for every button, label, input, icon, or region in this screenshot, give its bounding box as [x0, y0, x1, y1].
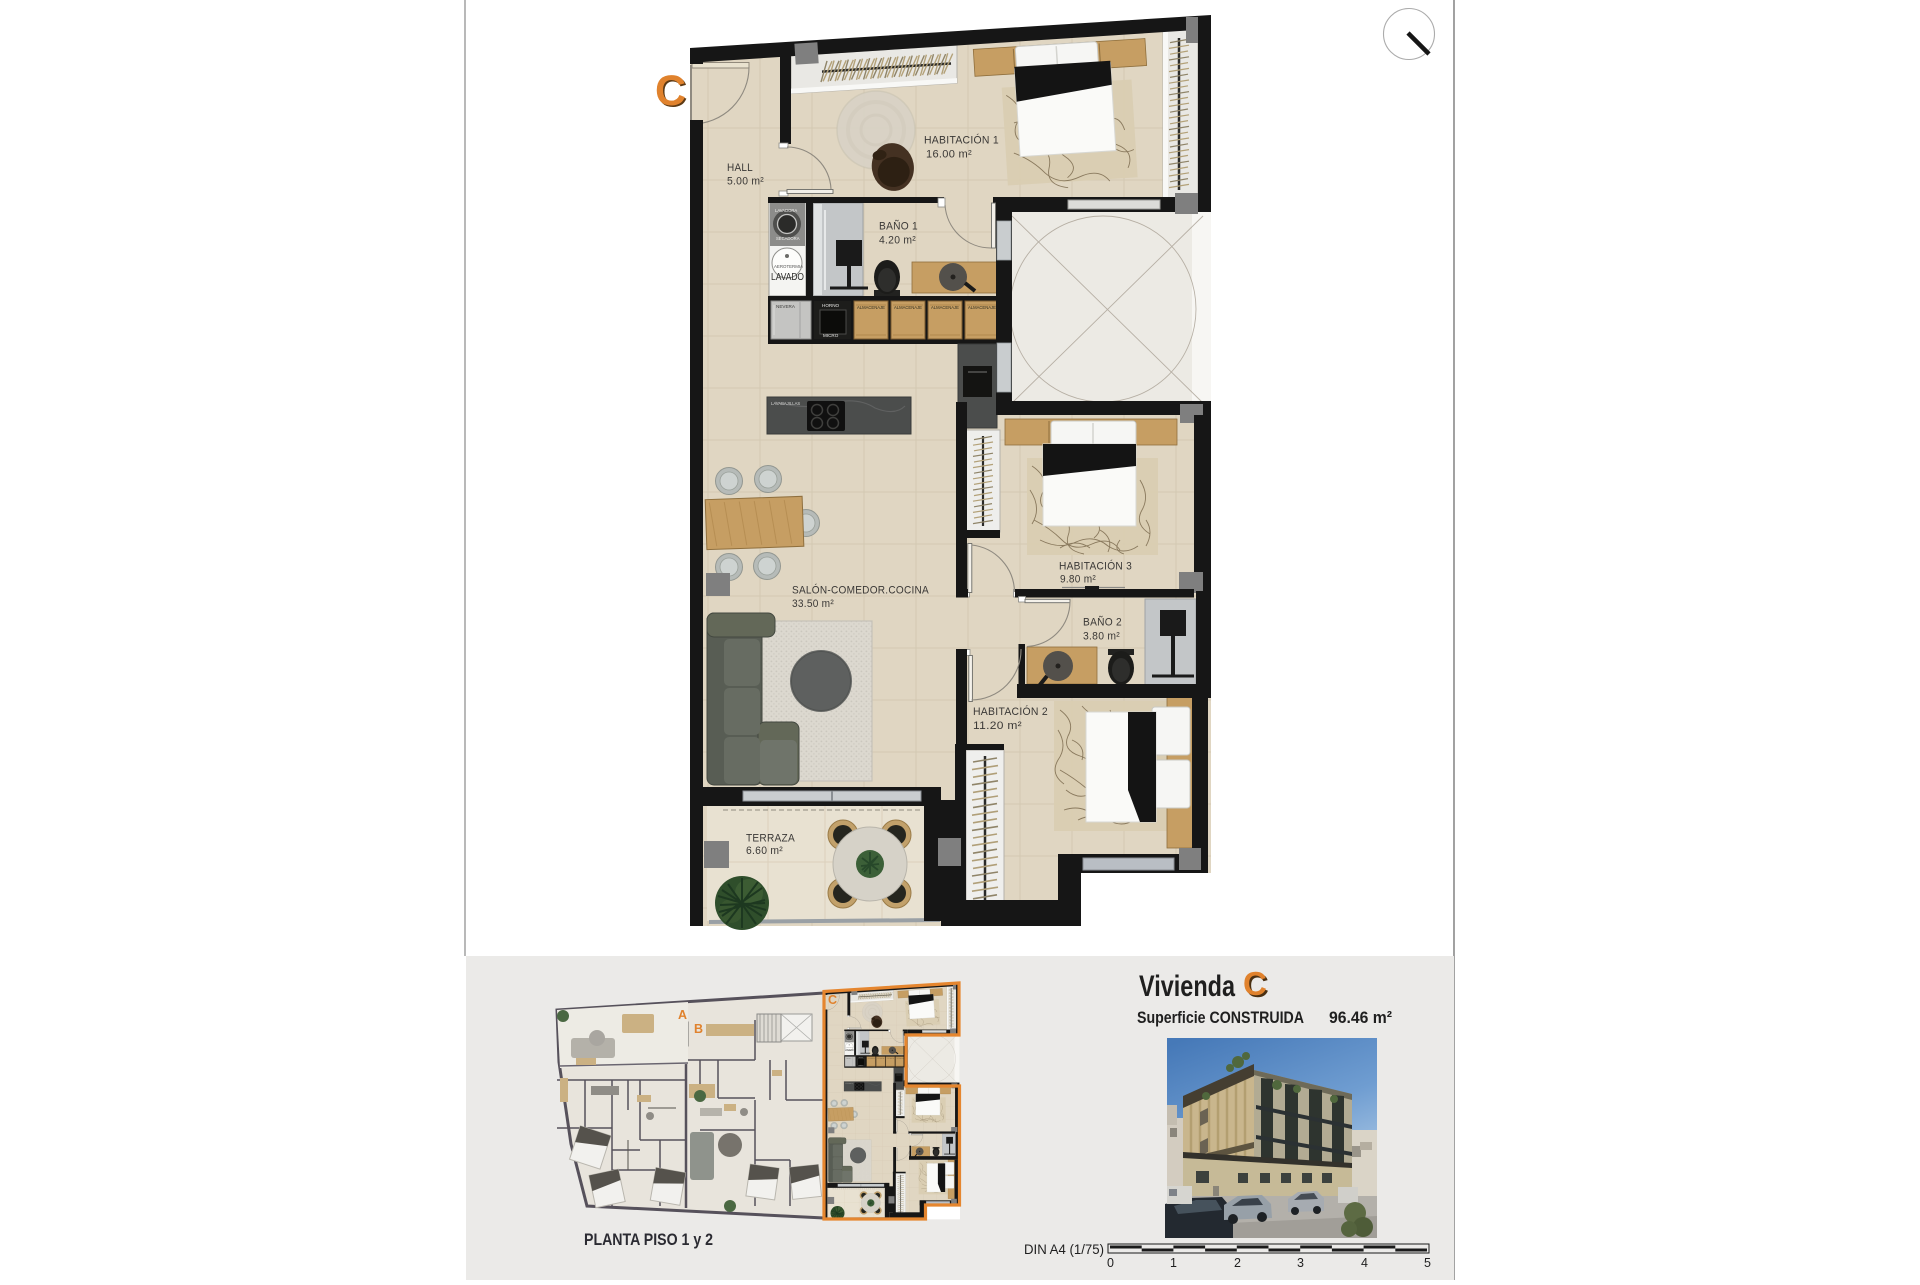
svg-text:96.46 m²: 96.46 m² — [1329, 1009, 1392, 1027]
svg-text:HABITACIÓN 1: HABITACIÓN 1 — [924, 134, 999, 147]
svg-text:Vivienda: Vivienda — [1139, 970, 1235, 1003]
svg-text:4: 4 — [1361, 1256, 1368, 1270]
svg-text:SALÓN-COMEDOR.COCINA: SALÓN-COMEDOR.COCINA — [792, 584, 929, 597]
svg-text:BAÑO 1: BAÑO 1 — [879, 220, 918, 233]
svg-text:TERRAZA: TERRAZA — [746, 833, 795, 845]
svg-text:HABITACIÓN 2: HABITACIÓN 2 — [973, 705, 1048, 718]
svg-text:3.80 m²: 3.80 m² — [1083, 631, 1120, 643]
svg-text:AEROTERMIA: AEROTERMIA — [774, 264, 803, 269]
svg-text:9.80 m²: 9.80 m² — [1060, 574, 1096, 586]
svg-text:C: C — [828, 993, 837, 1007]
svg-text:PLANTA PISO 1 y 2: PLANTA PISO 1 y 2 — [584, 1230, 713, 1249]
svg-text:C: C — [1243, 965, 1267, 1002]
svg-text:ALMACENAJE: ALMACENAJE — [968, 305, 996, 310]
svg-text:HALL: HALL — [727, 162, 753, 174]
svg-text:B: B — [694, 1022, 703, 1036]
svg-text:ALMACENAJE: ALMACENAJE — [931, 305, 959, 310]
svg-text:11.20 m²: 11.20 m² — [973, 720, 1022, 732]
svg-text:1: 1 — [1170, 1256, 1177, 1270]
svg-text:2: 2 — [1234, 1256, 1241, 1270]
svg-text:3: 3 — [1297, 1256, 1304, 1270]
svg-text:NEVERA: NEVERA — [776, 304, 796, 309]
svg-text:C: C — [655, 67, 686, 115]
svg-text:5.00 m²: 5.00 m² — [727, 176, 764, 188]
svg-text:5: 5 — [1424, 1256, 1431, 1270]
svg-text:HABITACIÓN 3: HABITACIÓN 3 — [1059, 560, 1132, 573]
svg-text:HORNO: HORNO — [822, 303, 840, 308]
svg-text:33.50 m²: 33.50 m² — [792, 598, 834, 610]
svg-text:Superficie CONSTRUIDA: Superficie CONSTRUIDA — [1137, 1009, 1304, 1027]
svg-text:BAÑO 2: BAÑO 2 — [1083, 616, 1122, 629]
svg-text:LAVADORA: LAVADORA — [775, 208, 797, 213]
svg-text:6.60 m²: 6.60 m² — [746, 845, 783, 857]
svg-text:LAVADO: LAVADO — [771, 271, 804, 283]
svg-text:DIN A4 (1/75): DIN A4 (1/75) — [1024, 1242, 1104, 1257]
svg-text:MICRO: MICRO — [823, 333, 839, 338]
svg-text:SECADORA: SECADORA — [776, 236, 800, 241]
svg-text:ALMACENAJE: ALMACENAJE — [857, 305, 885, 310]
svg-text:4.20 m²: 4.20 m² — [879, 235, 916, 247]
svg-text:ALMACENAJE: ALMACENAJE — [894, 305, 922, 310]
svg-text:16.00 m²: 16.00 m² — [926, 149, 972, 161]
svg-text:A: A — [678, 1008, 687, 1022]
svg-text:LAVABAJILLAS: LAVABAJILLAS — [771, 401, 800, 406]
svg-text:0: 0 — [1107, 1256, 1114, 1270]
